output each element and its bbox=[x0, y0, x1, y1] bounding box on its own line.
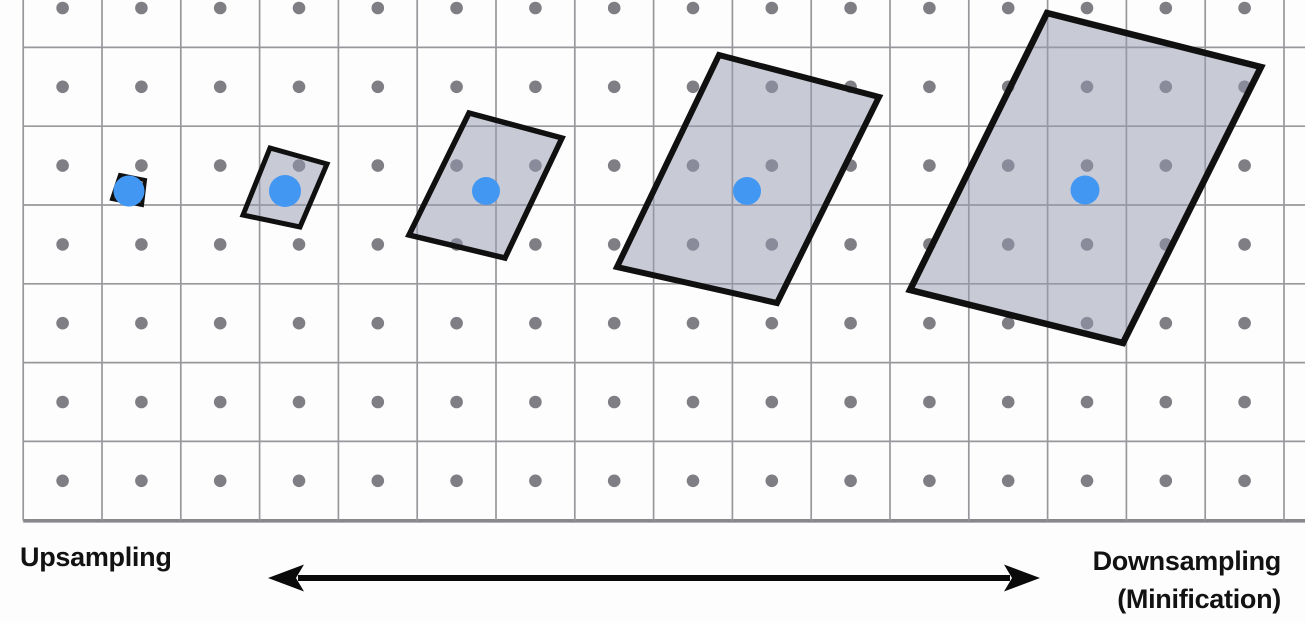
texel-dot bbox=[687, 81, 700, 94]
texel-dot bbox=[56, 396, 69, 409]
texel-dot bbox=[372, 475, 385, 488]
sample-point bbox=[1071, 176, 1100, 205]
texel-dot bbox=[56, 238, 69, 251]
texel-dot bbox=[372, 81, 385, 94]
sample-point bbox=[472, 177, 500, 205]
texel-dot bbox=[450, 81, 463, 94]
texel-dot bbox=[923, 2, 936, 15]
texel-dot bbox=[135, 317, 148, 330]
texel-dot bbox=[214, 396, 227, 409]
texel-grid-canvas bbox=[0, 0, 1305, 623]
texel-dot bbox=[56, 475, 69, 488]
minification-label-line2: (Minification) bbox=[1093, 580, 1281, 618]
texel-dot bbox=[529, 81, 542, 94]
texel-dot bbox=[1238, 159, 1251, 172]
texel-dot bbox=[135, 396, 148, 409]
texel-dot bbox=[923, 396, 936, 409]
downsampling-label-line1: Downsampling bbox=[1093, 542, 1281, 580]
texture-sampling-diagram: Upsampling Downsampling (Minification) bbox=[0, 0, 1305, 623]
texel-dot bbox=[372, 159, 385, 172]
texel-dot bbox=[687, 396, 700, 409]
upsampling-label: Upsampling bbox=[20, 542, 172, 573]
texel-dot bbox=[608, 475, 621, 488]
texel-dot bbox=[56, 317, 69, 330]
texel-dot bbox=[1081, 396, 1094, 409]
texel-dot bbox=[1238, 2, 1251, 15]
texel-dot bbox=[372, 238, 385, 251]
texel-dot bbox=[1002, 2, 1015, 15]
texel-dot bbox=[214, 81, 227, 94]
texel-dot bbox=[608, 317, 621, 330]
texel-dot bbox=[844, 396, 857, 409]
texel-dot bbox=[214, 159, 227, 172]
texel-dot bbox=[1238, 475, 1251, 488]
texel-dot bbox=[1002, 475, 1015, 488]
texel-dot bbox=[529, 238, 542, 251]
texel-dot bbox=[844, 475, 857, 488]
texel-dot bbox=[1160, 317, 1173, 330]
sample-point bbox=[733, 177, 761, 205]
texel-dot bbox=[608, 238, 621, 251]
sample-point bbox=[114, 176, 145, 207]
texel-dot bbox=[293, 317, 306, 330]
texel-dot bbox=[214, 475, 227, 488]
texel-dot bbox=[608, 159, 621, 172]
texel-dot bbox=[923, 159, 936, 172]
texel-dot bbox=[1160, 396, 1173, 409]
texel-dot bbox=[293, 2, 306, 15]
texel-dot bbox=[450, 2, 463, 15]
texel-dot bbox=[372, 317, 385, 330]
texel-dot bbox=[923, 475, 936, 488]
texel-dot bbox=[766, 317, 779, 330]
texel-dot bbox=[687, 475, 700, 488]
texel-dot bbox=[293, 475, 306, 488]
texel-dot bbox=[450, 317, 463, 330]
texel-dot bbox=[608, 396, 621, 409]
texel-dot bbox=[923, 317, 936, 330]
texel-dot bbox=[608, 81, 621, 94]
texel-dot bbox=[56, 2, 69, 15]
texel-dot bbox=[529, 317, 542, 330]
texel-dot bbox=[687, 317, 700, 330]
texel-dot bbox=[135, 238, 148, 251]
texel-dot bbox=[766, 396, 779, 409]
texel-dot bbox=[135, 81, 148, 94]
texel-dot bbox=[844, 2, 857, 15]
texel-dot bbox=[56, 159, 69, 172]
texel-dot bbox=[608, 2, 621, 15]
texel-dot bbox=[1238, 317, 1251, 330]
texel-dot bbox=[687, 2, 700, 15]
texel-dot bbox=[1238, 396, 1251, 409]
texel-dot bbox=[1002, 396, 1015, 409]
sample-point bbox=[269, 175, 301, 207]
texel-dot bbox=[372, 396, 385, 409]
texel-dot bbox=[923, 81, 936, 94]
texel-dot bbox=[214, 317, 227, 330]
texel-dot bbox=[529, 2, 542, 15]
texel-dot bbox=[135, 159, 148, 172]
texel-dot bbox=[293, 238, 306, 251]
texel-dot bbox=[1238, 238, 1251, 251]
texel-dot bbox=[214, 238, 227, 251]
texel-dot bbox=[372, 2, 385, 15]
texel-dot bbox=[1081, 2, 1094, 15]
texel-dot bbox=[766, 2, 779, 15]
texel-dot bbox=[1160, 2, 1173, 15]
texel-dot bbox=[293, 396, 306, 409]
texel-dot bbox=[56, 81, 69, 94]
texel-dot bbox=[214, 2, 227, 15]
texel-dot bbox=[766, 475, 779, 488]
texel-dot bbox=[1081, 475, 1094, 488]
downsampling-label: Downsampling (Minification) bbox=[1093, 542, 1281, 618]
texel-dot bbox=[1160, 475, 1173, 488]
texel-dot bbox=[529, 396, 542, 409]
texel-dot bbox=[293, 81, 306, 94]
texel-dot bbox=[135, 2, 148, 15]
texel-dot bbox=[844, 317, 857, 330]
texel-dot bbox=[844, 238, 857, 251]
texel-dot bbox=[450, 396, 463, 409]
texel-dot bbox=[135, 475, 148, 488]
texel-dot bbox=[450, 475, 463, 488]
texel-dot bbox=[529, 475, 542, 488]
